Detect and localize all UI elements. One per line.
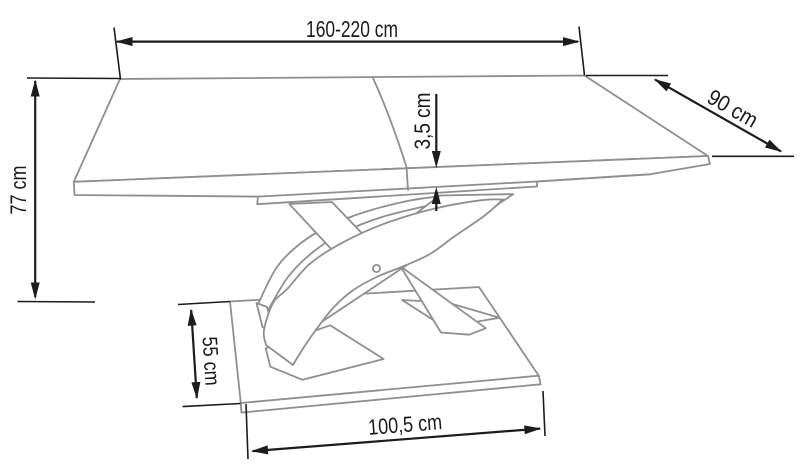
svg-text:77 cm: 77 cm [6,166,31,215]
svg-text:160-220 cm: 160-220 cm [306,16,398,42]
svg-text:3,5 cm: 3,5 cm [410,93,435,150]
svg-text:55 cm: 55 cm [198,336,224,386]
